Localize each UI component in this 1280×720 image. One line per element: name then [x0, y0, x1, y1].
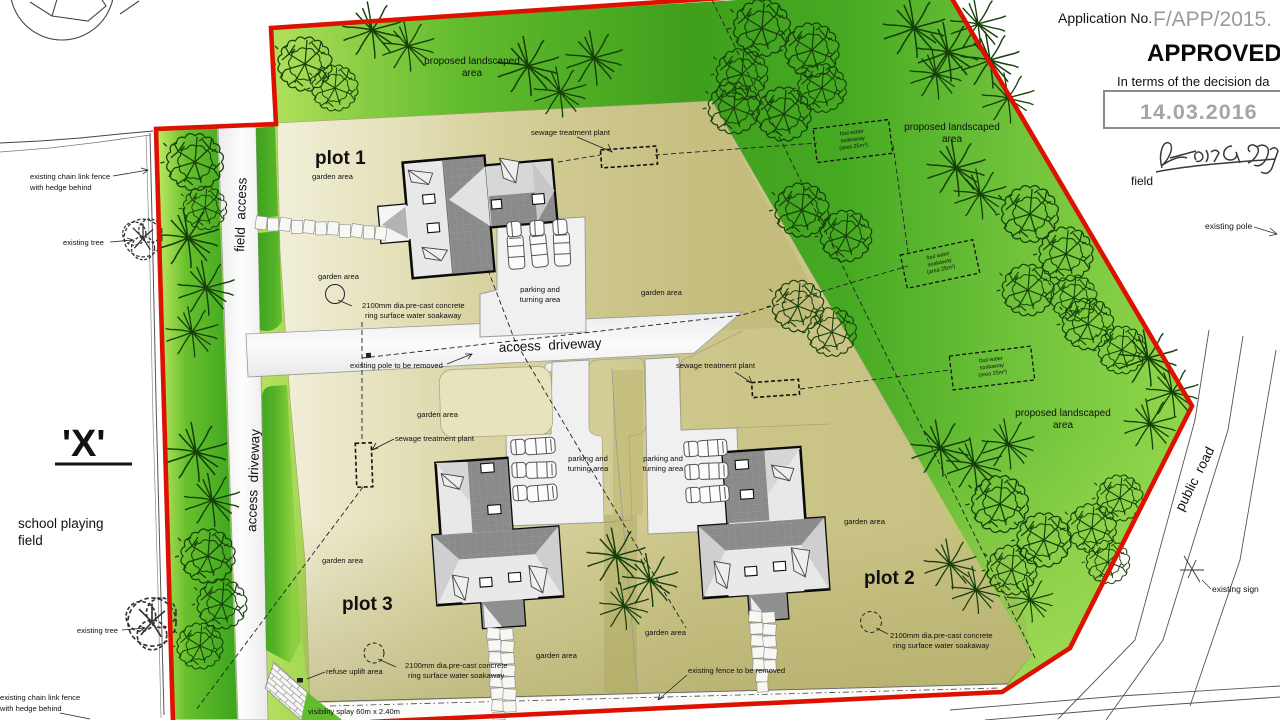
svg-text:APPROVED: APPROVED	[1147, 40, 1280, 67]
svg-text:with hedge behind: with hedge behind	[0, 704, 62, 713]
svg-text:area: area	[462, 68, 482, 79]
svg-text:2100mm dia.pre-cast concrete: 2100mm dia.pre-cast concrete	[405, 661, 508, 670]
svg-text:existing pole: existing pole	[1205, 221, 1253, 231]
svg-text:garden area: garden area	[312, 172, 354, 181]
svg-text:turning area: turning area	[520, 295, 561, 304]
svg-text:proposed landscaped: proposed landscaped	[1015, 408, 1111, 419]
svg-text:garden area: garden area	[641, 288, 683, 297]
svg-text:existing chain link fence: existing chain link fence	[30, 172, 110, 181]
svg-text:with hedge behind: with hedge behind	[29, 183, 92, 192]
svg-text:2100mm dia.pre-cast concrete: 2100mm dia.pre-cast concrete	[890, 631, 993, 640]
svg-text:existing fence to be removed: existing fence to be removed	[688, 666, 785, 675]
svg-text:garden area: garden area	[844, 517, 886, 526]
svg-text:existing sign: existing sign	[1212, 584, 1259, 594]
svg-text:plot 3: plot 3	[342, 594, 393, 615]
svg-text:sewage treatment plant: sewage treatment plant	[531, 128, 611, 137]
svg-text:field access: field access	[232, 177, 250, 252]
svg-text:area: area	[942, 134, 962, 145]
svg-text:school playing: school playing	[18, 516, 104, 531]
svg-text:F/APP/2015.: F/APP/2015.	[1153, 8, 1272, 31]
svg-text:garden area: garden area	[318, 272, 360, 281]
svg-text:proposed landscaped: proposed landscaped	[424, 56, 520, 67]
svg-text:plot 1: plot 1	[315, 148, 366, 169]
svg-text:garden area: garden area	[536, 651, 578, 660]
svg-text:garden area: garden area	[417, 410, 459, 419]
svg-text:garden area: garden area	[645, 628, 687, 637]
svg-text:turning area: turning area	[568, 464, 609, 473]
svg-text:existing pole to be removed: existing pole to be removed	[350, 361, 443, 370]
svg-text:garden area: garden area	[322, 556, 364, 565]
svg-text:existing chain link fence: existing chain link fence	[0, 693, 80, 702]
svg-text:sewage treatment plant: sewage treatment plant	[676, 361, 756, 370]
svg-text:parking and: parking and	[643, 454, 683, 463]
svg-text:field: field	[18, 533, 43, 548]
svg-text:'X': 'X'	[62, 423, 105, 465]
svg-text:parking and: parking and	[568, 454, 608, 463]
svg-text:2100mm dia.pre-cast concrete: 2100mm dia.pre-cast concrete	[362, 301, 465, 310]
svg-text:visibility splay 60m x 2.40m: visibility splay 60m x 2.40m	[308, 707, 400, 716]
svg-text:In terms of the decision da: In terms of the decision da	[1117, 74, 1270, 89]
svg-text:field: field	[1131, 174, 1153, 188]
svg-text:refuse uplift area: refuse uplift area	[326, 667, 383, 676]
svg-text:existing tree: existing tree	[63, 238, 104, 247]
svg-text:proposed landscaped: proposed landscaped	[904, 122, 1000, 133]
svg-text:turning area: turning area	[643, 464, 684, 473]
svg-text:sewage treatment plant: sewage treatment plant	[395, 434, 475, 443]
svg-text:ring surface water soakaway: ring surface water soakaway	[408, 671, 504, 680]
svg-text:area: area	[1053, 420, 1073, 431]
svg-text:plot 2: plot 2	[864, 568, 915, 589]
svg-text:ring surface water soakaway: ring surface water soakaway	[365, 311, 461, 320]
svg-text:Application No.: Application No.	[1058, 10, 1152, 26]
svg-text:14.03.2016: 14.03.2016	[1140, 100, 1258, 124]
svg-text:parking and: parking and	[520, 285, 560, 294]
svg-text:ring surface water soakaway: ring surface water soakaway	[893, 641, 989, 650]
svg-text:existing tree: existing tree	[77, 626, 118, 635]
